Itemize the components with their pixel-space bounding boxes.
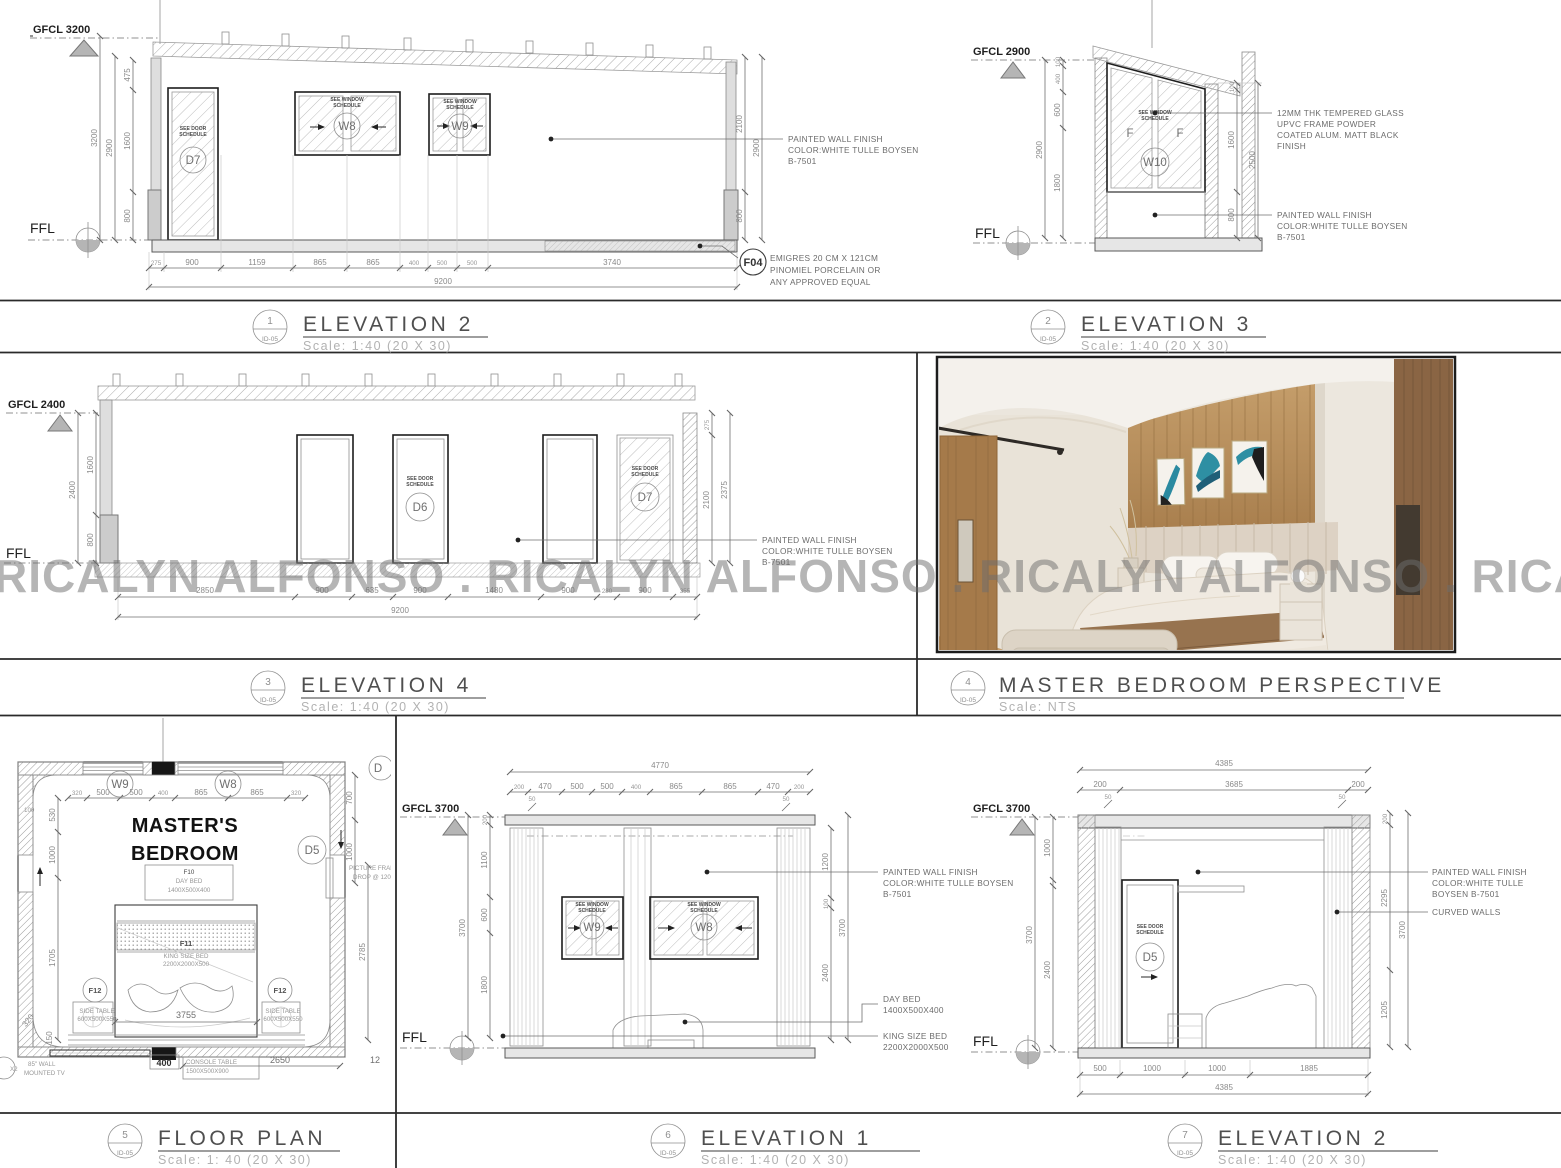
- svg-text:SCHEDULE: SCHEDULE: [631, 472, 659, 478]
- svg-text:COLOR:WHITE TULLE BOYSEN: COLOR:WHITE TULLE BOYSEN: [1277, 221, 1408, 231]
- svg-text:3700: 3700: [458, 919, 467, 937]
- svg-text:F11: F11: [180, 939, 193, 948]
- svg-text:1600: 1600: [123, 132, 132, 150]
- svg-text:800: 800: [86, 533, 95, 547]
- svg-text:BOYSEN B-7501: BOYSEN B-7501: [1432, 889, 1500, 899]
- svg-text:200: 200: [1093, 780, 1107, 789]
- svg-text:SCHEDULE: SCHEDULE: [1136, 930, 1164, 936]
- svg-text:2785: 2785: [358, 943, 367, 961]
- title-elevation-2-top: 1 ID-05 ELEVATION 2 Scale: 1:40 (20 X 30…: [253, 310, 488, 353]
- floor-tile-note: EMIGRES 20 CM X 121CM: [770, 253, 878, 263]
- room-label: MASTER'S: [132, 815, 239, 837]
- art-frame: [1232, 441, 1267, 493]
- svg-text:ID-05: ID-05: [660, 1150, 676, 1157]
- elevation-2-top-view: GFCL 3200 SEE DOOR SCHEDULE D7 SEE WINDO…: [28, 0, 919, 290]
- svg-text:400: 400: [409, 260, 420, 267]
- svg-text:B-7501: B-7501: [788, 156, 817, 166]
- svg-text:900: 900: [315, 586, 329, 595]
- finish-tag-f04: F04: [744, 257, 764, 269]
- svg-text:1000: 1000: [1143, 1064, 1161, 1073]
- svg-text:1200: 1200: [821, 853, 830, 871]
- svg-text:3685: 3685: [1225, 780, 1243, 789]
- level-label: FFL: [402, 1029, 427, 1045]
- title-elevation-1: 6 ID-05 ELEVATION 1 Scale: 1:40 (20 X 30…: [651, 1124, 920, 1167]
- svg-text:COLOR:WHITE TULLE BOYSEN: COLOR:WHITE TULLE BOYSEN: [788, 145, 919, 155]
- svg-text:B-7501: B-7501: [883, 889, 912, 899]
- pillow: [180, 983, 233, 1012]
- svg-text:DROP @ 120: DROP @ 120: [353, 874, 391, 881]
- svg-text:400: 400: [631, 784, 642, 791]
- svg-text:100: 100: [823, 898, 830, 909]
- svg-text:B-7501: B-7501: [762, 557, 791, 567]
- plan-window-w8: [178, 764, 283, 775]
- title-floor-plan: 5 ID-05 FLOOR PLAN Scale: 1: 40 (20 X 30…: [108, 1124, 340, 1167]
- door-tag: D7: [186, 155, 201, 167]
- svg-text:COLOR:WHITE TULLE BOYSEN: COLOR:WHITE TULLE BOYSEN: [883, 878, 1014, 888]
- svg-text:1000: 1000: [1043, 839, 1052, 857]
- svg-text:470: 470: [766, 782, 780, 791]
- svg-text:700: 700: [345, 791, 354, 805]
- svg-text:865: 865: [723, 782, 737, 791]
- svg-text:2850: 2850: [196, 586, 214, 595]
- svg-text:50: 50: [529, 796, 536, 803]
- svg-text:50: 50: [783, 796, 790, 803]
- svg-text:F: F: [1176, 128, 1183, 140]
- svg-text:320: 320: [72, 790, 83, 797]
- plan-window-w9: [83, 764, 143, 775]
- svg-text:900: 900: [413, 586, 427, 595]
- master-bedroom-perspective-render: [937, 357, 1455, 664]
- svg-text:1400X500X400: 1400X500X400: [883, 1005, 944, 1015]
- svg-text:1000: 1000: [1208, 1064, 1226, 1073]
- window-tag: W9: [451, 121, 468, 133]
- svg-text:4385: 4385: [1215, 1083, 1233, 1092]
- svg-text:SCHEDULE: SCHEDULE: [1141, 116, 1169, 122]
- svg-text:2400: 2400: [821, 964, 830, 982]
- art-frame: [1157, 459, 1185, 505]
- art-frame: [1192, 448, 1224, 498]
- svg-text:800: 800: [735, 209, 744, 223]
- level-triangle-icon: [48, 415, 72, 431]
- level-triangle-icon: [70, 40, 98, 56]
- svg-text:280: 280: [602, 588, 613, 595]
- svg-text:400: 400: [156, 1058, 171, 1068]
- viewport-title: FLOOR PLAN: [158, 1127, 326, 1150]
- svg-text:ID-05: ID-05: [1177, 1150, 1193, 1157]
- svg-text:1705: 1705: [48, 949, 57, 967]
- svg-text:4385: 4385: [1215, 759, 1233, 768]
- svg-text:COLOR:WHITE TULLE BOYSEN: COLOR:WHITE TULLE BOYSEN: [762, 546, 893, 556]
- window-tag: W8: [338, 121, 355, 133]
- day-bed-note: DAY BED: [883, 994, 921, 1004]
- svg-text:1800: 1800: [480, 976, 489, 994]
- svg-text:2200X2000X500: 2200X2000X500: [163, 961, 210, 968]
- wall-finish-note: PAINTED WALL FINISH: [788, 134, 883, 144]
- svg-text:2900: 2900: [1035, 141, 1044, 159]
- side-table-left: F12 SIDE TABLE 600X500X550: [73, 978, 117, 1033]
- title-perspective: 4 ID-05 MASTER BEDROOM PERSPECTIVE Scale…: [951, 671, 1445, 714]
- viewport-title: ELEVATION 2: [303, 313, 474, 336]
- svg-text:COATED ALUM. MATT BLACK: COATED ALUM. MATT BLACK: [1277, 130, 1399, 140]
- svg-text:600X500X550: 600X500X550: [263, 1016, 303, 1023]
- svg-text:X2: X2: [10, 1066, 18, 1073]
- viewport-title: ELEVATION 1: [701, 1127, 872, 1150]
- window-w9: SEE WINDOW SCHEDULE W9: [562, 897, 623, 959]
- svg-text:50: 50: [1339, 794, 1346, 801]
- svg-text:2400: 2400: [68, 481, 77, 499]
- svg-text:2100: 2100: [735, 115, 744, 133]
- svg-text:2650: 2650: [270, 1055, 290, 1065]
- svg-text:635: 635: [365, 586, 379, 595]
- svg-text:1159: 1159: [248, 258, 266, 267]
- svg-text:865: 865: [313, 258, 327, 267]
- svg-text:1800: 1800: [1053, 174, 1062, 192]
- svg-text:500: 500: [600, 782, 614, 791]
- shelf: [1178, 886, 1244, 892]
- level-label: FFL: [973, 1033, 998, 1049]
- svg-text:900: 900: [638, 586, 652, 595]
- day-bed: F10 DAY BED 1400X500X400: [145, 865, 233, 900]
- svg-text:2375: 2375: [720, 481, 729, 499]
- svg-text:MOUNTED TV: MOUNTED TV: [24, 1070, 66, 1077]
- room-label: BEDROOM: [131, 843, 239, 865]
- svg-text:UPVC FRAME POWDER: UPVC FRAME POWDER: [1277, 119, 1376, 129]
- svg-text:2100: 2100: [702, 491, 711, 509]
- viewport-scale: Scale: 1:40 (20 X 30): [701, 1153, 850, 1167]
- svg-text:85" WALL: 85" WALL: [28, 1061, 56, 1068]
- svg-text:SCHEDULE: SCHEDULE: [446, 105, 474, 111]
- svg-text:3700: 3700: [1025, 926, 1034, 944]
- svg-text:ANY APPROVED EQUAL: ANY APPROVED EQUAL: [770, 277, 871, 287]
- pillow: [128, 984, 178, 1012]
- window-w8: SEE WINDOW SCHEDULE W8: [295, 92, 400, 155]
- level-label: FFL: [30, 220, 55, 236]
- svg-text:F12: F12: [274, 986, 287, 995]
- level-triangle-icon: [1010, 819, 1034, 835]
- glass-spec-note: 12MM THK TEMPERED GLASS: [1277, 108, 1404, 118]
- svg-text:12: 12: [370, 1055, 380, 1065]
- wall-finish-note: PAINTED WALL FINISH: [762, 535, 857, 545]
- svg-text:ID-05: ID-05: [262, 336, 278, 343]
- svg-text:F: F: [1126, 128, 1133, 140]
- svg-text:CONSOLE TABLE: CONSOLE TABLE: [186, 1059, 237, 1066]
- viewport-scale: Scale: NTS: [999, 700, 1077, 714]
- svg-text:2900: 2900: [752, 139, 761, 157]
- bed-profile: [1206, 984, 1316, 1048]
- svg-text:1: 1: [267, 316, 273, 327]
- king-bed: F11 KING SIZE BED 2200X2000X500 3755: [115, 905, 257, 1037]
- svg-text:200: 200: [1351, 780, 1365, 789]
- svg-text:1885: 1885: [1300, 1064, 1318, 1073]
- level-label: GFCL 2900: [973, 46, 1030, 58]
- door-tag: D6: [413, 502, 428, 514]
- window-w9: SEE WINDOW SCHEDULE W9: [429, 94, 490, 155]
- viewport-scale: Scale: 1:40 (20 X 30): [301, 700, 450, 714]
- drawing-sheet: GFCL 3200 SEE DOOR SCHEDULE D7 SEE WINDO…: [0, 0, 1561, 1168]
- door-d6: SEE DOOR SCHEDULE D6: [393, 435, 448, 563]
- svg-text:865: 865: [366, 258, 380, 267]
- title-elevation-4: 3 ID-05 ELEVATION 4 Scale: 1:40 (20 X 30…: [251, 671, 486, 714]
- console-table: CONSOLE TABLE 1500X500X900: [183, 1057, 259, 1079]
- window-tag: W8: [695, 922, 712, 934]
- svg-text:1480: 1480: [485, 586, 503, 595]
- svg-text:2500: 2500: [1248, 151, 1257, 169]
- svg-text:9200: 9200: [391, 606, 409, 615]
- svg-text:200: 200: [1382, 813, 1389, 824]
- svg-text:275: 275: [151, 260, 162, 267]
- svg-text:600: 600: [480, 908, 489, 922]
- viewport-title: ELEVATION 4: [301, 674, 472, 697]
- door-tag: D5: [305, 845, 320, 857]
- svg-text:500: 500: [129, 788, 143, 797]
- svg-text:1205: 1205: [1380, 1001, 1389, 1019]
- window-tag: W8: [219, 779, 236, 791]
- svg-text:900: 900: [185, 258, 199, 267]
- wall-finish-note: PAINTED WALL FINISH: [1277, 210, 1372, 220]
- svg-text:SCHEDULE: SCHEDULE: [333, 103, 361, 109]
- level-label: GFCL 3700: [973, 803, 1030, 815]
- svg-text:F10: F10: [184, 869, 195, 876]
- door-tag: D7: [638, 492, 653, 504]
- svg-text:865: 865: [250, 788, 264, 797]
- viewport-scale: Scale: 1: 40 (20 X 30): [158, 1153, 312, 1167]
- bench: [1002, 630, 1177, 660]
- door-tag: D5: [1143, 952, 1158, 964]
- svg-text:2900: 2900: [105, 139, 114, 157]
- door-leaf: [326, 858, 333, 898]
- svg-text:2200X2000X500: 2200X2000X500: [883, 1042, 949, 1052]
- svg-text:FINISH: FINISH: [1277, 141, 1306, 151]
- svg-text:3755: 3755: [176, 1010, 196, 1020]
- floor-plan-view: MASTER'S BEDROOM 320 500 500 400 865 865…: [0, 718, 400, 1079]
- viewport-title: ELEVATION 2: [1218, 1127, 1389, 1150]
- viewport-title: MASTER BEDROOM PERSPECTIVE: [999, 674, 1445, 697]
- svg-text:600: 600: [1053, 103, 1062, 117]
- svg-text:9200: 9200: [434, 277, 452, 286]
- nightstand-right: [1280, 584, 1322, 640]
- door-d5: SEE DOOR SCHEDULE D5: [1122, 880, 1178, 1048]
- svg-text:6: 6: [665, 1130, 671, 1141]
- svg-text:SCHEDULE: SCHEDULE: [179, 132, 207, 138]
- level-label: GFCL 3200: [33, 24, 90, 36]
- svg-text:500: 500: [570, 782, 584, 791]
- svg-text:2295: 2295: [1380, 889, 1389, 907]
- svg-text:DAY BED: DAY BED: [176, 878, 203, 885]
- elevation-1-view: GFCL 3700 4770 200 470 500 500 400 865 8…: [400, 761, 1014, 1065]
- svg-text:COLOR:WHITE TULLE: COLOR:WHITE TULLE: [1432, 878, 1524, 888]
- viewport-scale: Scale: 1:40 (20 X 30): [1218, 1153, 1367, 1167]
- svg-text:800: 800: [123, 209, 132, 223]
- svg-text:150: 150: [45, 1031, 54, 1045]
- window-tag: W10: [1143, 157, 1167, 169]
- svg-text:1000: 1000: [48, 846, 57, 864]
- window-tag: W9: [111, 779, 128, 791]
- level-label: GFCL 2400: [8, 399, 65, 411]
- svg-text:100: 100: [1229, 81, 1236, 92]
- window-tag: W9: [583, 922, 600, 934]
- svg-text:KING SIZE BED: KING SIZE BED: [163, 953, 209, 960]
- svg-text:2400: 2400: [1043, 961, 1052, 979]
- title-elevation-2-bottom: 7 ID-05 ELEVATION 2 Scale: 1:40 (20 X 30…: [1168, 1124, 1438, 1167]
- svg-text:1000: 1000: [345, 843, 354, 861]
- svg-text:SCHEDULE: SCHEDULE: [578, 908, 606, 914]
- level-triangle-icon: [443, 819, 467, 835]
- svg-text:100: 100: [1055, 56, 1062, 67]
- svg-text:200: 200: [794, 784, 805, 791]
- svg-text:200: 200: [482, 814, 489, 825]
- svg-text:400: 400: [158, 790, 169, 797]
- svg-text:3700: 3700: [1398, 921, 1407, 939]
- king-bed-note: KING SIZE BED: [883, 1031, 947, 1041]
- svg-text:1600: 1600: [86, 456, 95, 474]
- svg-text:4770: 4770: [651, 761, 669, 770]
- elevation-4-view: GFCL 2400 SEE DOOR SCHEDULE D6 SEE DOOR …: [4, 374, 893, 620]
- svg-text:ID-05: ID-05: [1040, 336, 1056, 343]
- door-d7: SEE DOOR SCHEDULE D7: [168, 88, 218, 240]
- svg-text:7: 7: [1182, 1130, 1188, 1141]
- wall-finish-note: PAINTED WALL FINISH: [1432, 867, 1527, 877]
- svg-text:355: 355: [680, 588, 691, 595]
- svg-text:900: 900: [561, 586, 575, 595]
- viewport-title: ELEVATION 3: [1081, 313, 1252, 336]
- svg-text:500: 500: [437, 260, 448, 267]
- svg-text:865: 865: [669, 782, 683, 791]
- svg-text:PINOMIEL PORCELAIN OR: PINOMIEL PORCELAIN OR: [770, 265, 881, 275]
- svg-text:500: 500: [467, 260, 478, 267]
- svg-text:100: 100: [24, 807, 35, 814]
- bed-profile: [613, 1014, 703, 1048]
- svg-text:475: 475: [123, 68, 132, 82]
- level-label: FFL: [975, 225, 1000, 241]
- kettle-lamp: [1291, 569, 1305, 583]
- svg-text:2: 2: [1045, 316, 1051, 327]
- svg-text:3740: 3740: [603, 258, 621, 267]
- window-w8: SEE WINDOW SCHEDULE W8: [650, 897, 758, 959]
- svg-text:4: 4: [965, 677, 971, 688]
- side-table-right: F12 SIDE TABLE 600X500X550: [262, 978, 303, 1033]
- viewport-scale: Scale: 1:40 (20 X 30): [303, 339, 452, 353]
- svg-text:B-7501: B-7501: [1277, 232, 1306, 242]
- svg-text:3700: 3700: [838, 919, 847, 937]
- level-label: GFCL 3700: [402, 803, 459, 815]
- elevation-2-bottom-view: GFCL 3700 4385 200 3685 200 50 50 SEE DO…: [971, 759, 1527, 1096]
- title-elevation-3: 2 ID-05 ELEVATION 3 Scale: 1:40 (20 X 30…: [1031, 310, 1266, 353]
- svg-text:600X500X550: 600X500X550: [77, 1016, 117, 1023]
- svg-text:470: 470: [538, 782, 552, 791]
- level-label: FFL: [6, 545, 31, 561]
- svg-text:320: 320: [291, 790, 302, 797]
- svg-text:3: 3: [265, 677, 271, 688]
- svg-text:ID-05: ID-05: [260, 697, 276, 704]
- svg-text:D: D: [374, 763, 382, 775]
- svg-text:ID-05: ID-05: [960, 697, 976, 704]
- svg-text:5: 5: [122, 1130, 128, 1141]
- door-d7: SEE DOOR SCHEDULE D7: [617, 435, 673, 563]
- svg-text:3200: 3200: [90, 129, 99, 147]
- svg-text:SCHEDULE: SCHEDULE: [406, 482, 434, 488]
- elevation-3-view: GFCL 2900 SEE WINDOW SCHEDULE F F W10 FF…: [971, 0, 1408, 260]
- svg-text:SIDE TABLE: SIDE TABLE: [79, 1008, 114, 1015]
- svg-text:500: 500: [1093, 1064, 1107, 1073]
- svg-text:1600: 1600: [1227, 131, 1236, 149]
- wardrobe: [1394, 357, 1455, 652]
- svg-text:400: 400: [1055, 73, 1062, 84]
- svg-text:275: 275: [704, 419, 711, 430]
- svg-text:PICTURE FRAME: PICTURE FRAME: [349, 865, 400, 872]
- svg-text:SIDE TABLE: SIDE TABLE: [265, 1008, 300, 1015]
- wall-finish-note: PAINTED WALL FINISH: [883, 867, 978, 877]
- svg-text:ID-05: ID-05: [117, 1150, 133, 1157]
- svg-text:1100: 1100: [480, 851, 489, 869]
- svg-text:865: 865: [194, 788, 208, 797]
- svg-text:1500X500X900: 1500X500X900: [186, 1068, 229, 1075]
- curved-walls-note: CURVED WALLS: [1432, 907, 1501, 917]
- viewport-scale: Scale: 1:40 (20 X 30): [1081, 339, 1230, 353]
- svg-text:530: 530: [48, 808, 57, 822]
- svg-text:SCHEDULE: SCHEDULE: [690, 908, 718, 914]
- svg-text:1400X500X400: 1400X500X400: [168, 887, 211, 894]
- level-triangle-icon: [1001, 62, 1025, 78]
- svg-text:F12: F12: [89, 986, 102, 995]
- svg-text:50: 50: [1105, 794, 1112, 801]
- svg-text:200: 200: [514, 784, 525, 791]
